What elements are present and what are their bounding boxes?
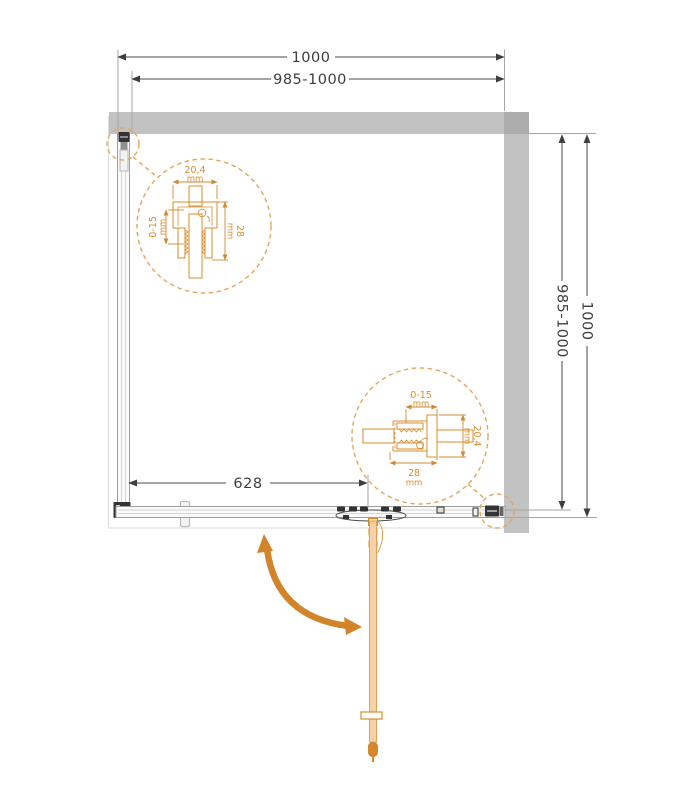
dim-label-right-outer: 1000 <box>579 302 595 341</box>
detail2-adjust-unit: mm <box>413 400 430 410</box>
detail1-adjust-unit: mm <box>159 219 169 236</box>
detail2-width-value: 20,4 <box>471 425 482 446</box>
shower-enclosure-plan-drawing: 1000 985-1000 985-1000 1000 628 <box>0 0 684 800</box>
detail1-width-unit: mm <box>187 175 204 185</box>
dim-label-door-width: 628 <box>233 476 262 492</box>
dim-label-top-inner: 985-1000 <box>273 72 347 88</box>
detail1-adjust-value: 0-15 <box>148 216 159 238</box>
wall-strip <box>363 429 394 443</box>
callout-leader-top-left <box>133 157 156 176</box>
door-assembly <box>361 519 383 763</box>
swing-arrowhead-up <box>257 534 273 553</box>
detail-callout-top-left: 20,4 mm 0-15 mm 28 mm <box>137 159 271 293</box>
glass-strip <box>189 214 202 278</box>
door-handle <box>361 712 382 719</box>
bottom-track-assembly <box>116 506 505 522</box>
wall-corner-overlap <box>504 112 529 134</box>
top-wall <box>109 112 529 134</box>
shower-tray <box>109 117 529 528</box>
door-bottom-pivot <box>368 742 378 762</box>
door-panel <box>370 521 377 742</box>
detail1-depth-value: 28 <box>234 225 245 237</box>
wall-profile-top-hardware <box>119 132 130 171</box>
detail2-depth-value: 28 <box>408 468 420 479</box>
wall-anchor-strip <box>189 186 202 206</box>
technical-drawing-page: 1000 985-1000 985-1000 1000 628 <box>0 0 684 800</box>
side-panel <box>114 132 152 518</box>
track-fitting <box>437 507 444 513</box>
dimension-door-width: 628 <box>129 475 368 508</box>
callout-leader-bottom-right <box>468 484 486 500</box>
detail-callout-bottom-right: 0-15 mm 28 mm 20,4 mm <box>352 368 488 504</box>
detail1-depth-unit: mm <box>225 223 235 240</box>
door-swing-arrow <box>257 534 362 635</box>
detail2-depth-unit: mm <box>406 479 423 489</box>
walls <box>109 112 529 533</box>
swing-arrowhead-right <box>344 617 362 635</box>
dim-label-top-outer: 1000 <box>292 50 331 66</box>
right-wall <box>504 112 529 533</box>
detail2-width-unit: mm <box>462 428 472 445</box>
dim-label-right-inner: 985-1000 <box>554 284 570 358</box>
